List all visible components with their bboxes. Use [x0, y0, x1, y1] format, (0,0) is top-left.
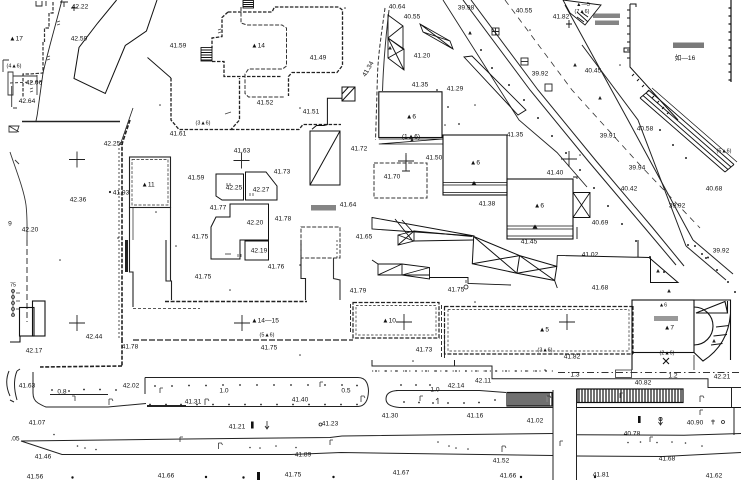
svg-text:41.07: 41.07	[29, 420, 46, 427]
svg-text:42.02: 42.02	[123, 383, 140, 390]
svg-text:39.92: 39.92	[669, 203, 686, 210]
svg-text:41.78: 41.78	[275, 216, 292, 223]
svg-text:41.40: 41.40	[292, 397, 309, 404]
svg-text:42.25: 42.25	[104, 141, 121, 148]
svg-text:▲11: ▲11	[141, 182, 155, 189]
svg-text:41.52: 41.52	[493, 458, 510, 465]
svg-text:41.52: 41.52	[257, 100, 274, 107]
svg-text:41.23: 41.23	[322, 421, 339, 428]
svg-text:41.63: 41.63	[19, 383, 36, 390]
svg-text:42.44: 42.44	[86, 334, 103, 341]
svg-text:41.21: 41.21	[229, 424, 246, 431]
svg-text:42.21: 42.21	[714, 374, 731, 381]
svg-text:41.75: 41.75	[261, 345, 278, 352]
svg-text:39.98: 39.98	[458, 5, 475, 12]
svg-text:9: 9	[8, 221, 12, 228]
svg-text:41.16: 41.16	[467, 413, 484, 420]
svg-text:41.82: 41.82	[553, 14, 570, 21]
svg-text:1.0: 1.0	[219, 388, 228, 395]
svg-text:▲14: ▲14	[251, 43, 265, 50]
svg-text:75: 75	[10, 283, 16, 289]
svg-text:40.68: 40.68	[706, 186, 723, 193]
svg-text:39.94: 39.94	[629, 165, 646, 172]
svg-text:39.92: 39.92	[532, 71, 549, 78]
svg-text:0.8: 0.8	[57, 389, 66, 396]
svg-text:40.69: 40.69	[592, 220, 609, 227]
svg-text:41.77: 41.77	[210, 205, 227, 212]
svg-text:41.67: 41.67	[393, 470, 410, 477]
svg-text:42.19: 42.19	[251, 248, 268, 255]
svg-text:41.66: 41.66	[500, 473, 517, 480]
svg-text:40.82: 40.82	[635, 380, 652, 387]
svg-text:42.64: 42.64	[19, 98, 36, 105]
svg-text:41.68: 41.68	[659, 456, 676, 463]
svg-text:41.79: 41.79	[350, 288, 367, 295]
svg-text:41.75: 41.75	[192, 234, 209, 241]
svg-text:39.91: 39.91	[600, 133, 617, 140]
svg-text:▲14—15: ▲14—15	[251, 318, 279, 325]
svg-text:41.66: 41.66	[158, 473, 175, 480]
svg-text:40.42: 40.42	[621, 186, 638, 193]
svg-text:42.06: 42.06	[26, 80, 43, 87]
svg-text:42.11: 42.11	[475, 378, 491, 385]
svg-text:41.70: 41.70	[384, 174, 401, 181]
svg-text:41.02: 41.02	[527, 418, 544, 425]
svg-text:40.58: 40.58	[637, 126, 654, 133]
svg-text:41.63: 41.63	[234, 148, 251, 155]
svg-text:41.02: 41.02	[582, 252, 599, 259]
svg-text:41.64: 41.64	[340, 202, 357, 209]
svg-text:41.73: 41.73	[416, 347, 433, 354]
svg-text:▲6: ▲6	[659, 303, 667, 309]
svg-text:1.0: 1.0	[430, 387, 439, 394]
svg-text:41.62: 41.62	[706, 473, 723, 480]
svg-text:.05: .05	[10, 436, 19, 443]
svg-text:41.75: 41.75	[448, 287, 465, 294]
svg-text:42.25: 42.25	[226, 185, 243, 192]
svg-text:(4▲6): (4▲6)	[7, 64, 22, 70]
svg-text:(5▲6): (5▲6)	[260, 333, 275, 339]
svg-text:(5▲6): (5▲6)	[717, 149, 732, 155]
svg-text:41.50: 41.50	[426, 155, 443, 162]
svg-text:41.89: 41.89	[295, 452, 312, 459]
svg-text:41.76: 41.76	[268, 264, 285, 271]
svg-text:(2▲6): (2▲6)	[660, 351, 675, 357]
svg-text:39.92: 39.92	[713, 248, 730, 255]
svg-text:41.49: 41.49	[310, 55, 327, 62]
svg-text:41.46: 41.46	[35, 454, 52, 461]
svg-text:41.35: 41.35	[412, 82, 429, 89]
svg-text:41.56: 41.56	[27, 474, 44, 480]
svg-text:41.38: 41.38	[479, 201, 496, 208]
svg-text:▲6: ▲6	[534, 203, 545, 210]
svg-text:(3▲6): (3▲6)	[196, 121, 211, 127]
svg-text:41.75: 41.75	[285, 472, 302, 479]
svg-text:41.40: 41.40	[547, 170, 564, 177]
svg-text:40.45: 40.45	[585, 68, 602, 75]
svg-text:42.20: 42.20	[22, 227, 39, 234]
svg-text:41.31: 41.31	[185, 399, 202, 406]
svg-text:41.20: 41.20	[414, 53, 431, 60]
svg-text:41.30: 41.30	[382, 413, 399, 420]
svg-text:(7▲6): (7▲6)	[575, 9, 590, 15]
svg-text:▲17: ▲17	[9, 36, 23, 43]
svg-text:42.59: 42.59	[71, 36, 88, 43]
svg-text:41.82: 41.82	[564, 354, 581, 361]
svg-text:42.27: 42.27	[253, 187, 270, 194]
svg-text:42.36: 42.36	[70, 197, 87, 204]
svg-text:▲7: ▲7	[664, 325, 675, 332]
svg-text:1.2: 1.2	[668, 373, 677, 380]
svg-text:41.68: 41.68	[592, 285, 609, 292]
svg-text:41.59: 41.59	[188, 175, 205, 182]
svg-text:▲10: ▲10	[382, 318, 396, 325]
svg-text:41.72: 41.72	[351, 146, 368, 153]
svg-text:42.14: 42.14	[448, 383, 465, 390]
svg-text:41.61: 41.61	[170, 131, 187, 138]
svg-text:42.20: 42.20	[247, 220, 264, 227]
svg-text:41.51: 41.51	[303, 109, 320, 116]
svg-text:42.17: 42.17	[26, 348, 43, 355]
svg-text:1.3: 1.3	[570, 372, 579, 379]
svg-text:41.29: 41.29	[447, 86, 464, 93]
svg-text:▲6: ▲6	[470, 160, 481, 167]
svg-text:40.55: 40.55	[404, 14, 421, 21]
svg-text:41.65: 41.65	[356, 234, 373, 241]
svg-text:41.75: 41.75	[195, 274, 212, 281]
svg-text:41.73: 41.73	[274, 169, 291, 176]
svg-text:40.55: 40.55	[516, 8, 533, 15]
svg-text:41.93: 41.93	[113, 190, 130, 197]
svg-text:如—16: 如—16	[675, 53, 696, 62]
svg-text:40.64: 40.64	[389, 4, 406, 11]
svg-text:▲5: ▲5	[539, 327, 550, 334]
svg-text:41.45: 41.45	[521, 239, 538, 246]
svg-text:41.59: 41.59	[170, 43, 187, 50]
svg-text:▲—5: ▲—5	[576, 2, 590, 8]
svg-text:40.90: 40.90	[687, 420, 704, 427]
svg-text:41.78: 41.78	[122, 344, 139, 351]
svg-text:0.5: 0.5	[341, 388, 350, 395]
svg-text:40.78: 40.78	[624, 431, 641, 438]
svg-text:41.35: 41.35	[507, 132, 524, 139]
svg-text:▲6: ▲6	[406, 114, 417, 121]
svg-text:(3▲6): (3▲6)	[538, 348, 553, 354]
svg-text:(1▲6): (1▲6)	[402, 134, 420, 141]
